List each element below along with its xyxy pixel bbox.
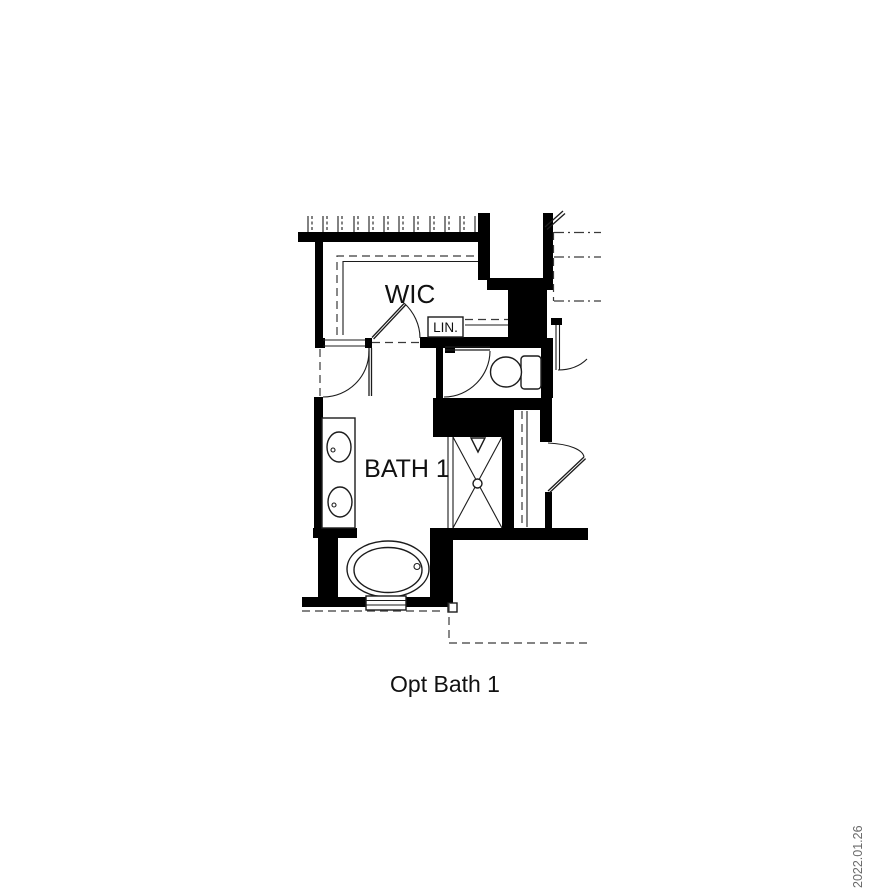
- adjacent-door-swing-arc: [558, 359, 587, 370]
- entry-door-swing-arc: [548, 443, 584, 457]
- wall-tub-right: [430, 528, 453, 603]
- shower: [448, 437, 502, 528]
- floor-plan-drawing: WIC LIN. BATH 1 Opt Bath 1 2022.01.26: [0, 0, 879, 894]
- shower-head-icon: [471, 438, 485, 452]
- toilet-bowl: [491, 357, 522, 387]
- entry-door: [548, 443, 586, 493]
- wall-toilet-door-jamb: [445, 345, 455, 353]
- wic-room-label: WIC: [385, 279, 436, 309]
- wall-entry-stub-bottom: [545, 492, 552, 528]
- wall-wic-right: [478, 213, 490, 280]
- bath-room-label: BATH 1: [364, 455, 450, 483]
- toilet-door-swing-arc: [444, 351, 490, 397]
- wall-bottom-left: [302, 597, 367, 607]
- wall-closet-left: [502, 410, 514, 528]
- wall-vanity-band: [313, 528, 357, 538]
- wall-bottom-right: [405, 597, 453, 607]
- wall-top: [298, 232, 490, 242]
- wall-divider: [436, 347, 443, 405]
- bathtub: [347, 541, 429, 597]
- wall-tub-left: [318, 538, 338, 597]
- option-dashed-outline: [302, 604, 590, 643]
- date-stamp: 2022.01.26: [851, 825, 865, 888]
- wall-toilet-right: [541, 338, 553, 398]
- shower-drain: [473, 479, 482, 488]
- floor-plan-sheet: WIC LIN. BATH 1 Opt Bath 1 2022.01.26: [0, 0, 879, 894]
- linen-closet-label: LIN.: [433, 320, 458, 335]
- adjacent-room-details: [545, 211, 601, 370]
- toilet: [491, 356, 542, 389]
- sink-basin: [328, 487, 352, 517]
- wall-jamb-header: [365, 338, 372, 348]
- vanity-double-sink: [322, 418, 355, 528]
- window-frame: [366, 596, 406, 610]
- wall-entry-stub-top: [540, 410, 552, 442]
- bath-entry-door: [320, 340, 372, 397]
- plan-caption: Opt Bath 1: [390, 671, 500, 697]
- closet-rail: [522, 411, 527, 527]
- wall-band-mid: [508, 398, 552, 410]
- wall-wic-left: [315, 242, 323, 338]
- bath-entry-swing-arc: [323, 351, 369, 397]
- tub-basin: [354, 548, 422, 593]
- sink-basin: [327, 432, 351, 462]
- closet-rod-hatching-icon: [308, 216, 479, 233]
- wall-band-bottom: [430, 528, 588, 540]
- walls: [298, 213, 588, 607]
- wall-right-upper: [543, 213, 553, 278]
- toilet-tank: [521, 356, 541, 389]
- wall-jamb-stub-right: [551, 318, 562, 325]
- wall-band-upper-right: [487, 278, 553, 290]
- entry-door-panel: [548, 457, 584, 491]
- wall-shower-head-mass: [433, 398, 508, 437]
- toilet-door: [444, 347, 490, 397]
- wall-mass-right: [508, 290, 547, 338]
